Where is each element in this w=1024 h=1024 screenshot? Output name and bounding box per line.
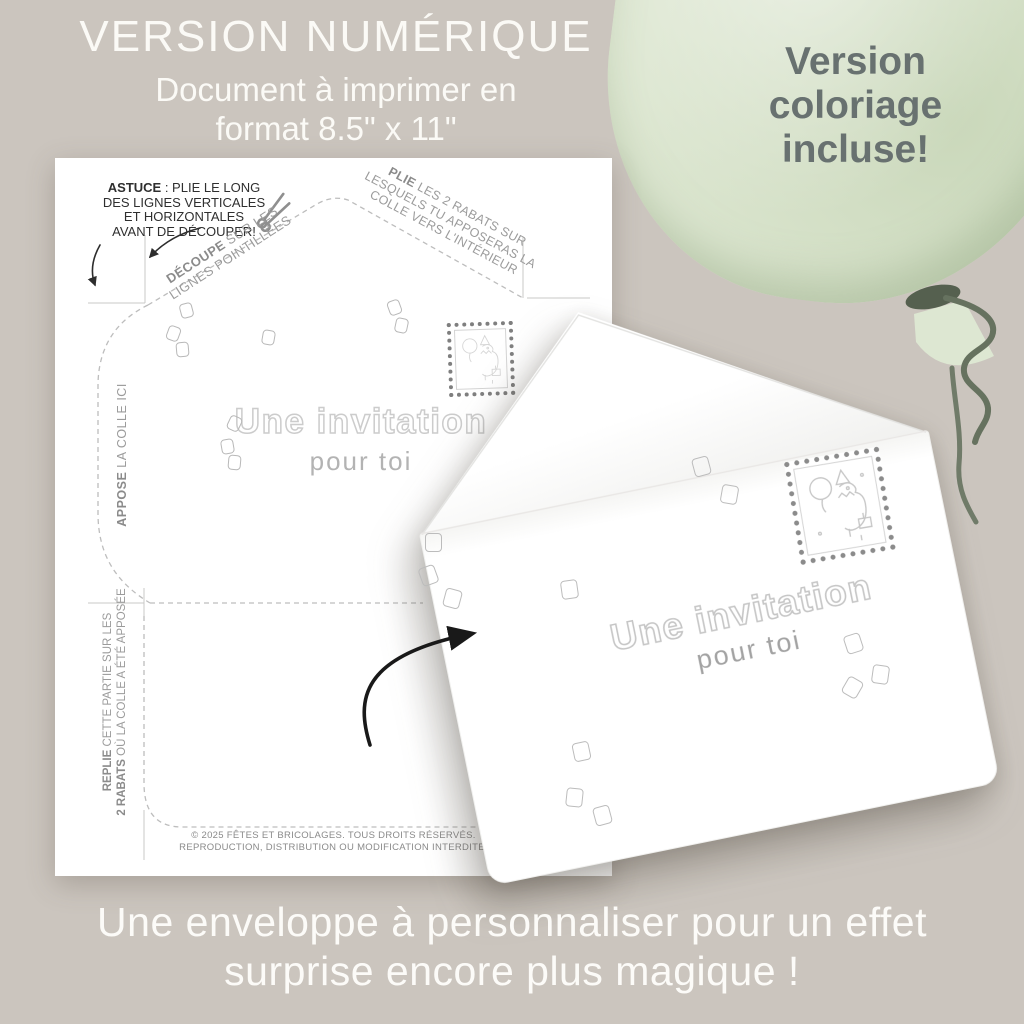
glue-here-note: APPOSE LA COLLE ICI xyxy=(115,355,129,555)
balloon-label-line-2: coloriage xyxy=(718,84,993,128)
confetti-icon xyxy=(719,484,739,506)
caption-line-2: surprise encore plus magique ! xyxy=(0,947,1024,996)
tip-bold: ASTUCE xyxy=(108,180,161,195)
confetti-icon xyxy=(571,740,592,762)
confetti-icon xyxy=(175,341,189,357)
confetti-icon xyxy=(560,579,579,600)
balloon-label: Version coloriage incluse! xyxy=(718,40,993,172)
postage-stamp-icon xyxy=(784,447,896,565)
subtitle-line-1: Document à imprimer en xyxy=(0,70,672,109)
refold-note: REPLIE CETTE PARTIE SUR LES 2 RABATS OÙ … xyxy=(101,568,129,836)
page-title: VERSION NUMÉRIQUE xyxy=(0,12,672,62)
subtitle-line-2: format 8.5" x 11" xyxy=(0,109,672,148)
confetti-icon xyxy=(220,438,235,455)
page-subtitle: Document à imprimer en format 8.5" x 11" xyxy=(0,70,672,148)
confetti-icon xyxy=(425,533,442,552)
confetti-icon xyxy=(871,664,890,685)
caption-line-1: Une enveloppe à personnaliser pour un ef… xyxy=(0,898,1024,947)
confetti-icon xyxy=(565,787,584,808)
stamp-art xyxy=(793,456,886,556)
assembled-envelope: Une invitation pour toi xyxy=(382,248,1000,886)
curved-arrow-icon xyxy=(92,245,100,285)
product-image: VERSION NUMÉRIQUE Document à imprimer en… xyxy=(0,0,1024,1024)
hand-drawn-arrow-icon xyxy=(340,600,510,770)
balloon-label-line-3: incluse! xyxy=(718,128,993,172)
top-left-corner-guide xyxy=(88,235,145,303)
balloon-label-line-1: Version xyxy=(718,40,993,84)
bottom-caption: Une enveloppe à personnaliser pour un ef… xyxy=(0,898,1024,996)
header: VERSION NUMÉRIQUE Document à imprimer en… xyxy=(0,12,672,148)
confetti-icon xyxy=(227,454,241,470)
